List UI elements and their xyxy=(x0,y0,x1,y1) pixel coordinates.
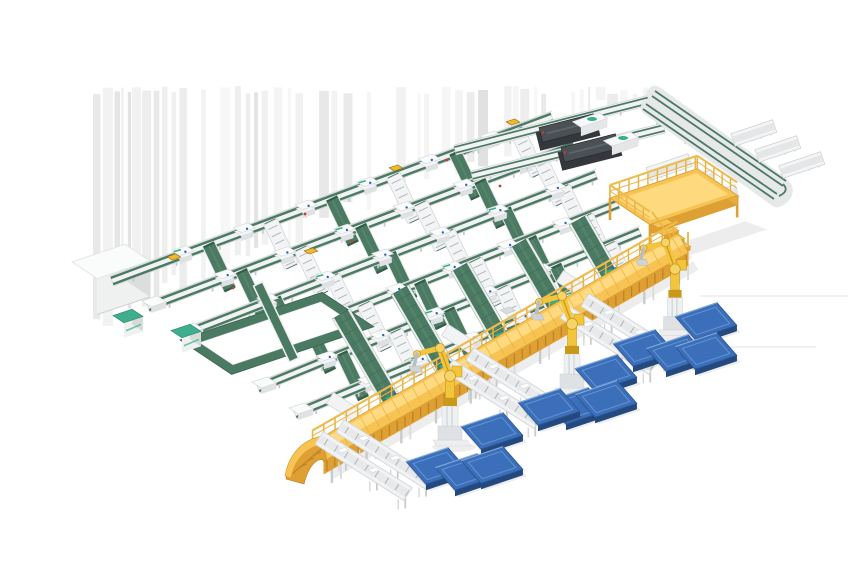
industrial-sortation-render xyxy=(0,0,860,580)
discharge-tray xyxy=(755,136,801,162)
render-canvas xyxy=(0,0,860,580)
control-cabinet xyxy=(113,309,143,338)
discharge-tray xyxy=(731,120,777,146)
discharge-tray xyxy=(779,152,825,178)
